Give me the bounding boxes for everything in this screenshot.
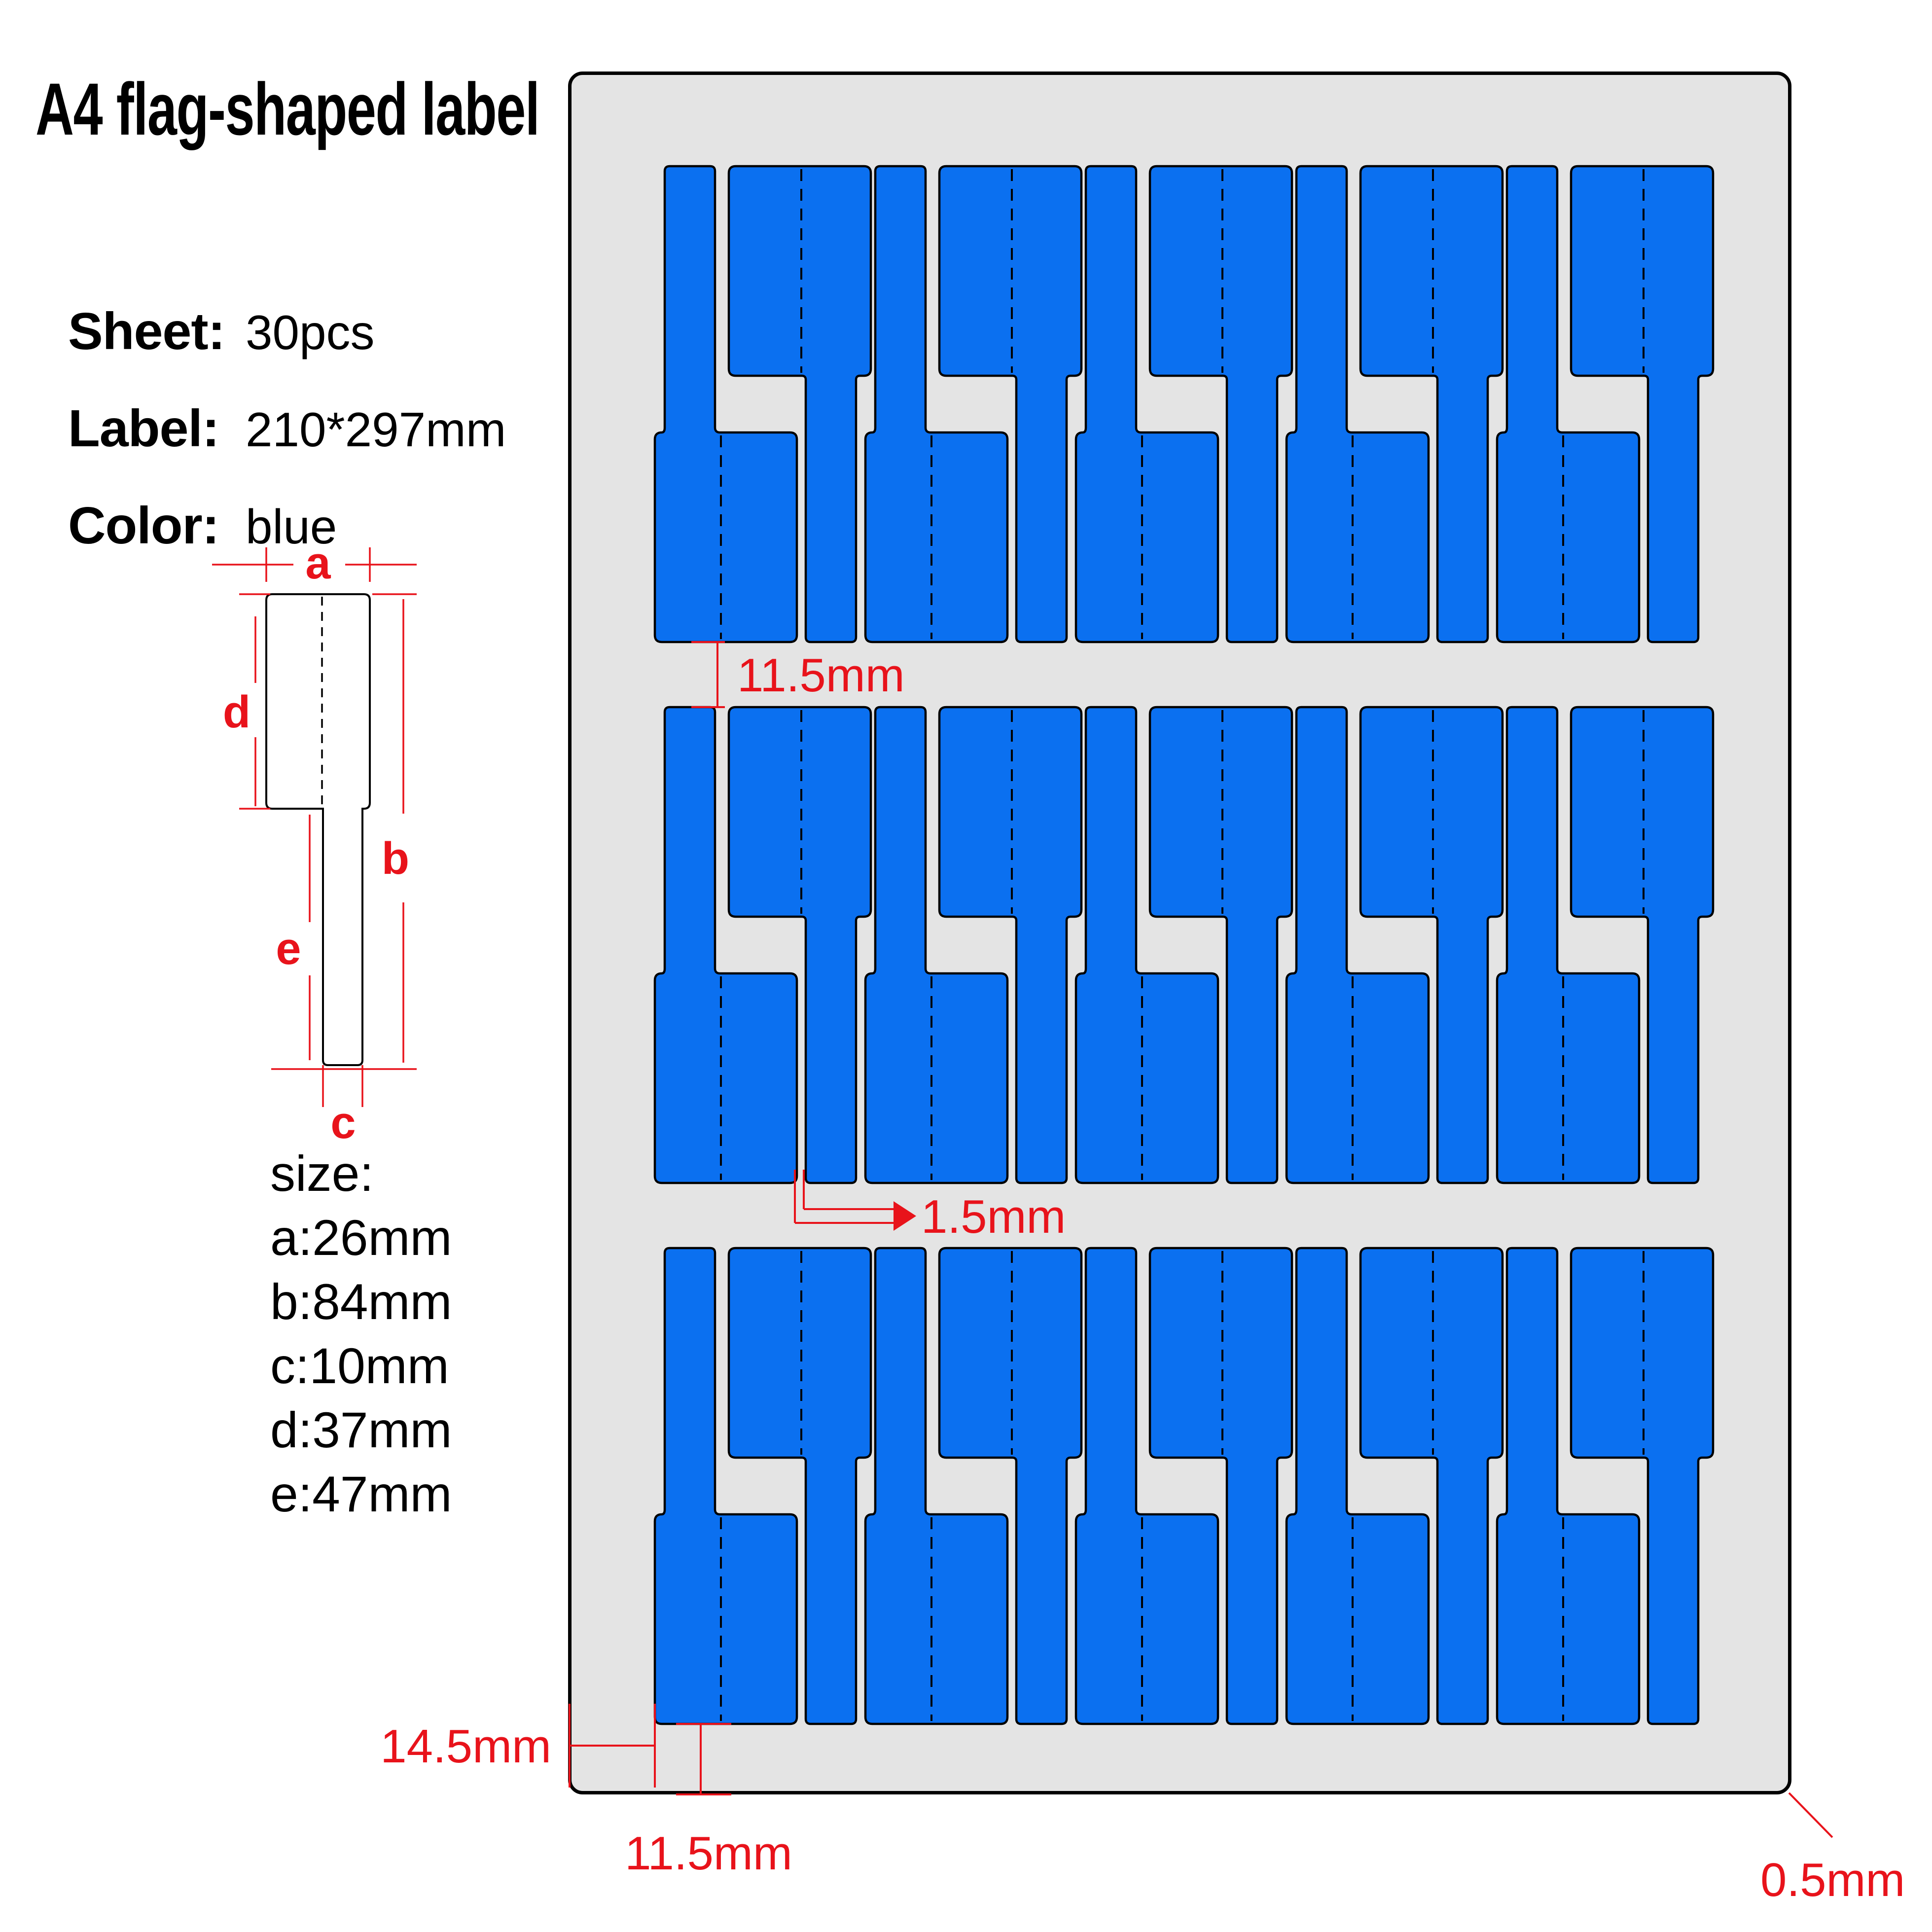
bottom-margin-dimension: 11.5mm bbox=[625, 1724, 792, 1880]
left-margin-dimension: 14.5mm bbox=[380, 1704, 655, 1788]
bottom-margin-dim-label: 11.5mm bbox=[625, 1827, 792, 1880]
sheet-corner-dimension: 0.5mm bbox=[1760, 1793, 1905, 1906]
sheet-corner-dim-label: 0.5mm bbox=[1760, 1854, 1905, 1906]
cut-gap-dimension: 1.5mm bbox=[795, 1170, 1066, 1243]
row-gap-dimension: 11.5mm bbox=[691, 642, 905, 707]
cut-gap-dim-label: 1.5mm bbox=[921, 1190, 1066, 1243]
row-gap-dim-label: 11.5mm bbox=[737, 649, 905, 702]
dimension-annotations: 11.5mm 1.5mm 14.5mm 11.5mm 0.5mm bbox=[0, 0, 1932, 1932]
left-margin-dim-label: 14.5mm bbox=[380, 1720, 551, 1773]
